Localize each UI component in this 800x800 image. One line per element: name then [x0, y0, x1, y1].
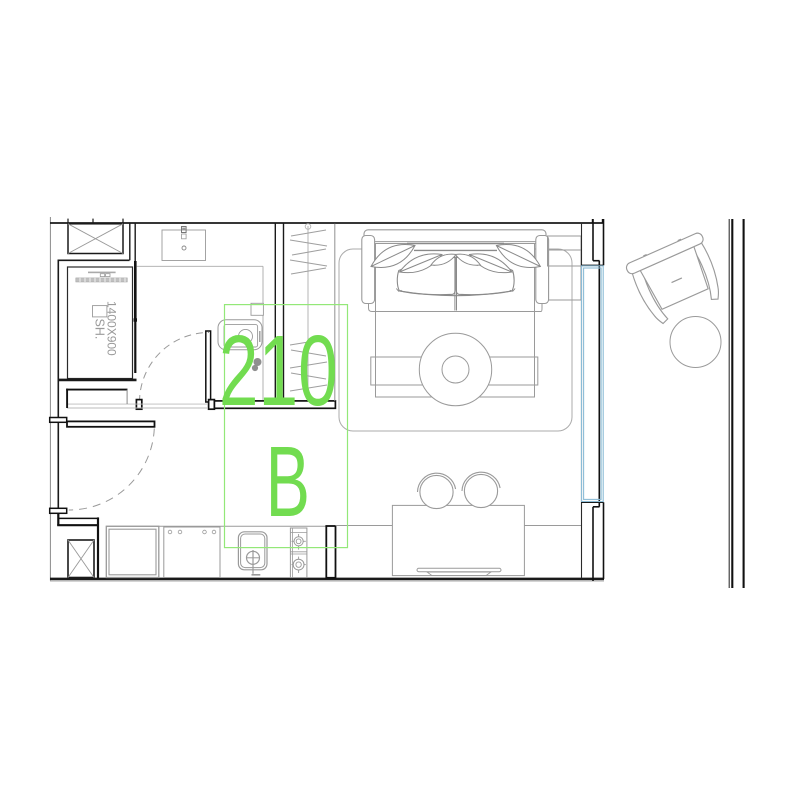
svg-text:210: 210 — [219, 315, 338, 427]
svg-text:B: B — [266, 426, 310, 538]
svg-text:SH.: SH. — [93, 319, 107, 340]
